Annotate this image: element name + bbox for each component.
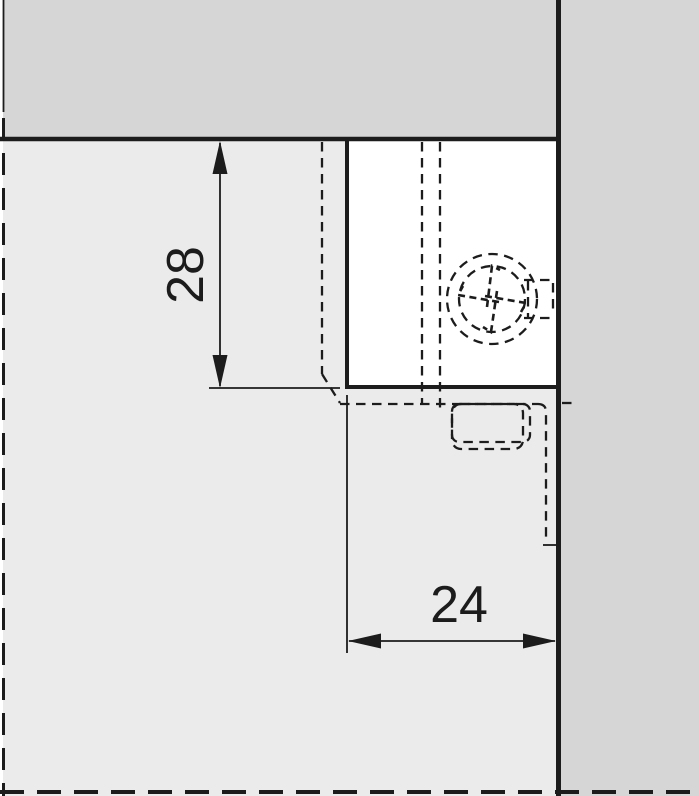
dim-28-label: 28 <box>157 246 215 304</box>
technical-drawing-canvas: 28 24 <box>0 0 699 796</box>
dim-24-label: 24 <box>430 576 488 634</box>
top-panel-section <box>3 0 559 139</box>
drawing-svg: 28 24 <box>0 0 699 796</box>
right-panel-section <box>556 0 699 796</box>
cup-recess <box>349 141 556 387</box>
